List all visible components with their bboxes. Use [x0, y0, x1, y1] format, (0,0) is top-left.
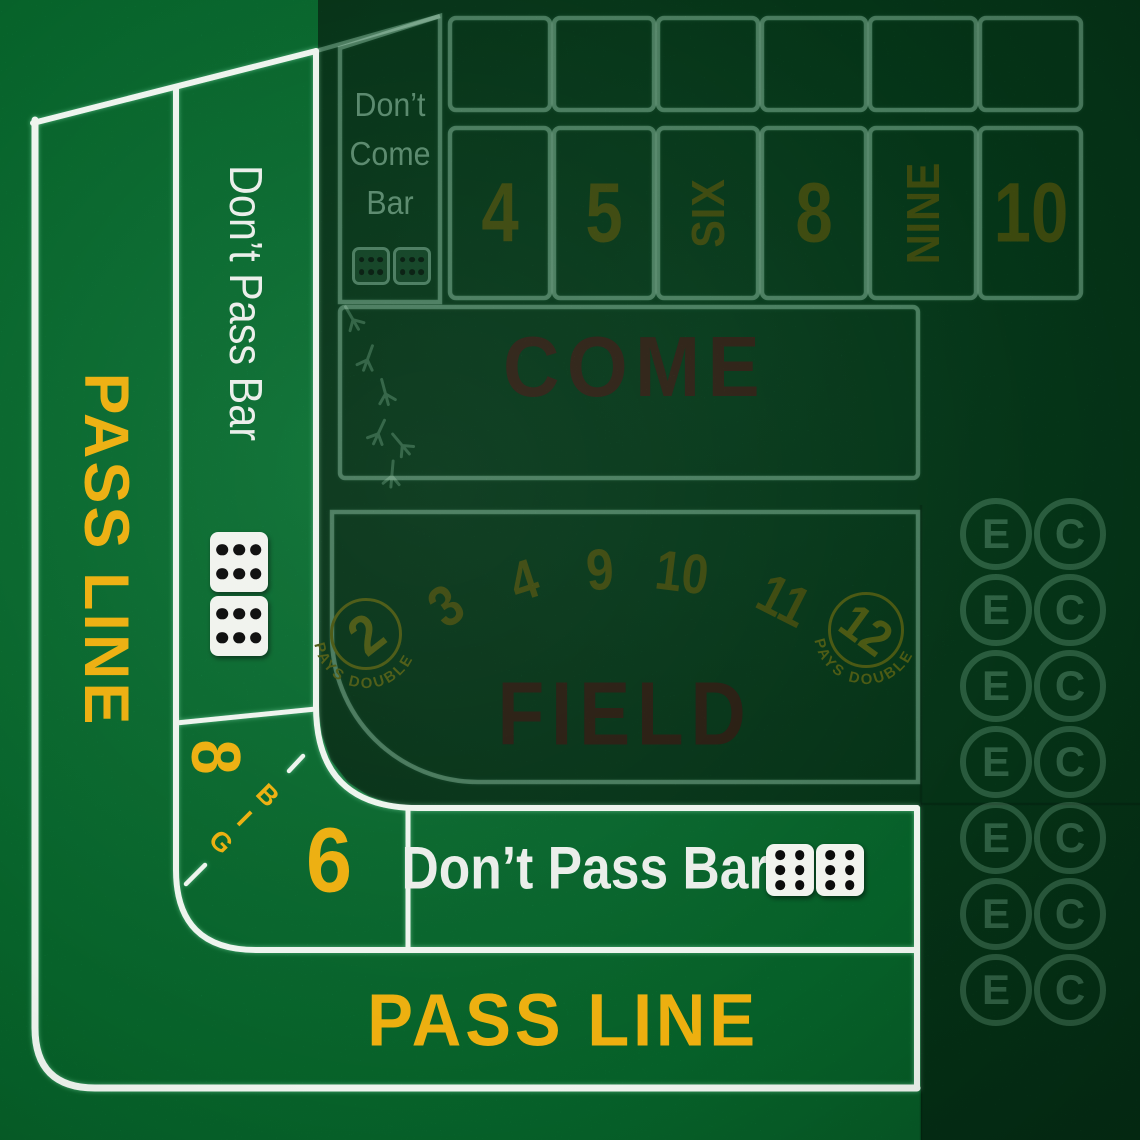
point-box-4[interactable]: 4: [450, 128, 550, 298]
craps-letter: C: [1055, 586, 1085, 634]
craps-circle[interactable]: C: [1034, 498, 1106, 570]
field-number-3: 3: [416, 571, 477, 642]
field-number-4: 4: [501, 545, 546, 615]
point-box-six[interactable]: SIX: [658, 128, 758, 298]
pass-line-left-label: PASS LINE: [70, 373, 142, 728]
eleven-circle[interactable]: E: [960, 802, 1032, 874]
craps-table: PAYS DOUBLE PAYS DOUBLE PASS LINE Don’t …: [0, 0, 1140, 1140]
eleven-circle[interactable]: E: [960, 574, 1032, 646]
craps-circle[interactable]: C: [1034, 650, 1106, 722]
pass-line-left-region[interactable]: PASS LINE: [35, 60, 176, 1040]
field-circle-2[interactable]: 2: [330, 598, 402, 670]
eleven-letter: E: [982, 890, 1010, 938]
eleven-circle[interactable]: E: [960, 650, 1032, 722]
field-circle-2-number: 2: [335, 600, 397, 668]
field-number-9: 9: [584, 536, 616, 605]
eleven-letter: E: [982, 738, 1010, 786]
die-six-icon: [766, 844, 814, 896]
field-label: FIELD: [498, 664, 753, 767]
field-number-10: 10: [652, 537, 712, 608]
point-label: 10: [993, 165, 1068, 262]
eleven-letter: E: [982, 510, 1010, 558]
eleven-circle[interactable]: E: [960, 498, 1032, 570]
point-box-5[interactable]: 5: [554, 128, 654, 298]
craps-circle[interactable]: C: [1034, 954, 1106, 1026]
craps-circle[interactable]: C: [1034, 878, 1106, 950]
big-letter-i: I: [230, 805, 259, 834]
point-label: NINE: [896, 162, 950, 265]
come-label: COME: [503, 319, 767, 417]
point-label: 8: [795, 165, 832, 262]
eleven-circle[interactable]: E: [960, 878, 1032, 950]
craps-letter: C: [1055, 814, 1085, 862]
field-number-11: 11: [747, 560, 821, 641]
point-upper-cell-5[interactable]: [554, 18, 654, 110]
field-region[interactable]: FIELD 3 4 9 10 11: [332, 512, 918, 782]
die-six-icon: [210, 596, 268, 656]
dont-pass-bottom-label: Don’t Pass Bar: [401, 834, 768, 903]
dont-pass-left-region[interactable]: Don’t Pass Bar: [176, 51, 316, 709]
big-six-label: 6: [306, 809, 352, 914]
craps-letter: C: [1055, 510, 1085, 558]
dont-pass-left-label: Don’t Pass Bar: [219, 165, 273, 441]
eleven-letter: E: [982, 662, 1010, 710]
point-box-nine[interactable]: NINE: [870, 128, 976, 298]
pass-line-bottom-label: PASS LINE: [367, 978, 759, 1063]
point-label: 4: [481, 165, 518, 262]
dont-pass-bottom-region[interactable]: Don’t Pass Bar: [408, 808, 917, 950]
field-circle-12-number: 12: [829, 592, 904, 668]
field-circle-12[interactable]: 12: [828, 592, 904, 668]
die-six-icon: [816, 844, 864, 896]
big-eight-label: 8: [176, 739, 256, 774]
die-six-icon: [393, 247, 431, 285]
craps-circle[interactable]: C: [1034, 574, 1106, 646]
craps-circle[interactable]: C: [1034, 802, 1106, 874]
point-upper-cell-10[interactable]: [980, 18, 1081, 110]
dont-come-label: Don’t Come Bar: [350, 80, 431, 227]
craps-circle[interactable]: C: [1034, 726, 1106, 798]
eleven-circle[interactable]: E: [960, 726, 1032, 798]
point-upper-cell-9[interactable]: [870, 18, 976, 110]
dont-come-region[interactable]: Don’t Come Bar: [340, 16, 440, 302]
craps-letter: C: [1055, 738, 1085, 786]
point-label: 5: [585, 165, 622, 262]
pass-line-bottom-region[interactable]: PASS LINE: [256, 950, 917, 1088]
craps-letter: C: [1055, 966, 1085, 1014]
eleven-letter: E: [982, 966, 1010, 1014]
point-upper-cell-4[interactable]: [450, 18, 550, 110]
point-label: SIX: [681, 178, 735, 247]
eleven-letter: E: [982, 586, 1010, 634]
die-six-icon: [210, 532, 268, 592]
point-box-8[interactable]: 8: [762, 128, 866, 298]
come-region[interactable]: COME: [340, 307, 918, 478]
big-six-region[interactable]: 6: [256, 800, 408, 948]
craps-letter: C: [1055, 662, 1085, 710]
point-upper-cell-6[interactable]: [658, 18, 758, 110]
point-upper-cell-8[interactable]: [762, 18, 866, 110]
die-six-icon: [352, 247, 390, 285]
eleven-circle[interactable]: E: [960, 954, 1032, 1026]
eleven-letter: E: [982, 814, 1010, 862]
craps-letter: C: [1055, 890, 1085, 938]
point-box-10[interactable]: 10: [980, 128, 1081, 298]
